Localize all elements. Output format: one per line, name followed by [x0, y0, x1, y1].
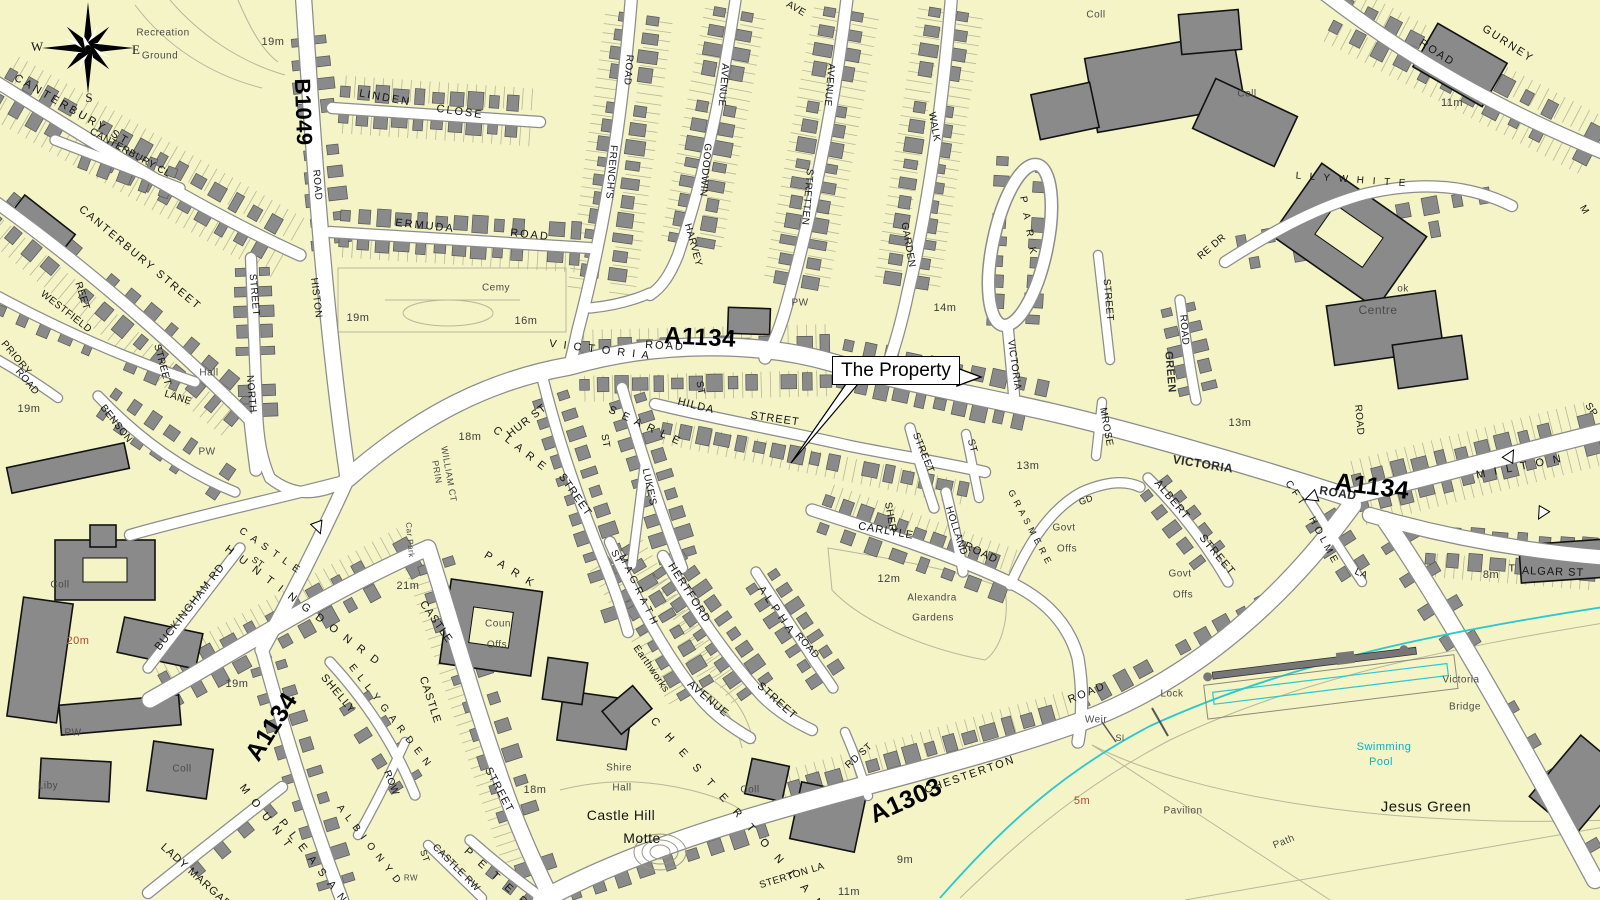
street-name-label: ST	[608, 548, 624, 565]
street-name-label: ROAD	[310, 169, 324, 201]
street-name-label: M	[1577, 203, 1591, 216]
street-name-label: ROAD	[621, 54, 635, 86]
street-name-label: WESTFIELD	[38, 289, 93, 336]
map-stage[interactable]: RecreationGround19mCANTERBURY STCANTERBU…	[0, 0, 1600, 900]
feature-label: 9m	[897, 854, 913, 866]
street-name-label: Earthworks	[631, 643, 672, 694]
feature-label: 11m	[1441, 97, 1463, 109]
feature-label: Offs	[1057, 544, 1077, 555]
feature-label: Offs	[1173, 590, 1193, 601]
map-labels: RecreationGround19mCANTERBURY STCANTERBU…	[0, 0, 1600, 900]
feature-label: 14m	[934, 302, 957, 314]
feature-label: PW	[64, 728, 81, 739]
street-name-label: STREET	[1101, 278, 1116, 321]
street-name-label: ALBERT	[1152, 478, 1192, 523]
street-name-label: ST	[693, 380, 706, 395]
feature-label: Offs	[487, 640, 507, 651]
street-name-label: CARLYLE	[857, 520, 915, 542]
street-name-label: C H E S T E R T O N L A N E	[648, 715, 842, 900]
feature-label: Pool	[1369, 756, 1393, 768]
street-name-label: ROAD	[1352, 404, 1366, 436]
street-name-label: E L L Y G A R D E N	[346, 662, 434, 770]
street-name-label: HUR ST	[505, 402, 549, 440]
street-name-label: HARVEY	[682, 222, 704, 267]
street-name-label: S E A R L E	[607, 404, 684, 448]
street-name-label: ROAD	[13, 367, 41, 398]
feature-label: Path	[1271, 833, 1296, 852]
feature-label: ok	[1397, 284, 1409, 295]
street-name-label: CANTERBURY ST	[12, 72, 132, 148]
street-name-label: NORTH	[244, 375, 258, 414]
street-name-label: STREET	[556, 471, 594, 518]
feature-label: PRIN	[430, 460, 444, 485]
feature-label: 19m	[347, 312, 370, 324]
street-name-label: BUCKINGHAM RD	[152, 561, 227, 652]
feature-label: Lock	[1160, 689, 1183, 700]
street-name-label: ROAD	[1417, 37, 1457, 69]
street-name-label: CHESTERTON	[923, 754, 1017, 796]
street-name-label: STREET	[1197, 532, 1238, 578]
street-name-label: Jesus Green	[1381, 799, 1472, 816]
feature-label: 8m	[1483, 569, 1499, 581]
street-name-label: ROAD	[793, 631, 822, 661]
feature-label: 5m	[1074, 795, 1090, 807]
feature-label: Hall	[612, 783, 631, 794]
street-name-label: C L A R E	[491, 424, 550, 474]
feature-label: Centre	[1358, 303, 1397, 317]
feature-label: 20m	[67, 635, 90, 647]
street-name-label: A L B I O N Y D	[334, 803, 403, 888]
street-name-label: AVENUE	[716, 63, 731, 107]
street-name-label: AVENUE	[685, 678, 731, 720]
street-name-label: Motte	[623, 830, 661, 846]
feature-label: Victoria	[1442, 675, 1479, 686]
street-name-label: STERTON LA	[758, 861, 826, 891]
route-number-label: A1134	[663, 322, 736, 354]
street-name-label: CLOSE	[436, 103, 485, 121]
street-name-label: MROSE	[1097, 407, 1115, 447]
feature-label: 13m	[1229, 417, 1252, 429]
feature-label: Hall	[199, 368, 218, 379]
street-name-label: LADY MARGAR	[158, 841, 234, 900]
street-name-label: P E T E R	[462, 845, 533, 900]
feature-label: Sl	[1115, 733, 1124, 743]
feature-label: Govt	[1052, 523, 1075, 534]
street-name-label: ST	[598, 433, 611, 448]
street-name-label: ROAD	[1318, 483, 1357, 503]
route-number-label: A1303	[865, 772, 946, 829]
feature-label: WILLIAM CT	[439, 445, 459, 502]
street-name-label: ROAD	[510, 227, 551, 243]
feature-label: Coll	[1237, 89, 1256, 100]
street-name-label: HILDA	[676, 396, 715, 417]
feature-label: Swimming	[1357, 741, 1412, 753]
street-name-label: GARDEN	[899, 221, 918, 268]
feature-label: PW	[791, 298, 808, 309]
feature-label: Ground	[142, 51, 178, 62]
route-number-label: B1049	[289, 78, 317, 146]
feature-label: 12m	[878, 573, 901, 585]
feature-label: Shire	[606, 763, 632, 774]
feature-label: Weir	[1085, 715, 1107, 726]
feature-label: RW	[404, 874, 418, 883]
feature-label: 19m	[262, 36, 285, 48]
street-name-label: T	[1509, 564, 1516, 575]
street-name-label: V I C T O R I A	[548, 338, 651, 362]
street-name-label: STREET	[151, 343, 173, 387]
feature-label: Coll	[50, 580, 69, 591]
feature-label: Coll	[1086, 10, 1105, 21]
street-name-label: CASTLE RW	[430, 842, 482, 894]
feature-label: Pavilion	[1163, 806, 1202, 817]
street-name-label: LA	[1353, 566, 1370, 582]
feature-label: Alexandra	[907, 593, 957, 604]
street-name-label: HOLLAND	[943, 505, 969, 557]
street-name-label: RD ST	[843, 741, 875, 771]
feature-label: PW	[198, 447, 215, 458]
street-name-label: H O L M E	[1306, 515, 1340, 565]
property-callout: The Property	[832, 356, 960, 385]
street-name-label: ROAD	[645, 339, 685, 353]
street-name-label: P A R K	[1017, 195, 1039, 258]
street-name-label: STREET	[482, 765, 516, 814]
street-name-label: STREET	[247, 273, 262, 316]
street-name-label: VICTORIA	[1172, 452, 1235, 475]
street-name-label: M I L T O N	[1475, 453, 1565, 482]
street-name-label: LUKE'S	[640, 467, 659, 506]
street-name-label: RE DR	[1196, 232, 1229, 262]
street-name-label: G R A S M E R E	[1006, 488, 1054, 566]
feature-label: Coun	[485, 619, 511, 630]
street-name-label: GURNEY	[1480, 23, 1536, 65]
street-name-label: CANTERBURY CL	[88, 126, 173, 180]
street-name-label: SP	[1582, 401, 1599, 419]
street-name-label: CASTLE	[417, 675, 443, 725]
street-name-label: GREEN	[1162, 351, 1178, 394]
feature-label: Car Park	[404, 522, 416, 558]
street-name-label: LANE	[163, 388, 193, 407]
street-name-label: STREET	[910, 431, 936, 474]
street-name-label: SHER	[882, 501, 898, 532]
feature-label: Govt	[1168, 569, 1191, 580]
feature-label: Coll	[172, 764, 191, 775]
feature-label: Gardens	[912, 613, 954, 624]
feature-label: 18m	[524, 784, 547, 796]
street-name-label: SHELLY	[318, 672, 358, 716]
property-callout-text: The Property	[841, 360, 951, 382]
street-name-label: ST	[965, 438, 979, 454]
route-number-label: A1134	[1333, 468, 1411, 506]
street-name-label: ST	[418, 848, 432, 863]
feature-label: 16m	[515, 315, 538, 327]
street-name-label: ERMUDA	[395, 217, 456, 235]
feature-label: Bridge	[1449, 702, 1481, 713]
street-name-label: AVE	[784, 0, 807, 19]
street-name-label: CANTERBURY STREET	[76, 203, 203, 312]
street-name-label: LINDEN	[358, 88, 412, 109]
street-name-label: ST	[250, 554, 266, 569]
feature-label: Recreation	[136, 28, 189, 39]
street-name-label: ROAD	[962, 540, 1000, 566]
street-name-label: C F T	[1283, 479, 1308, 508]
feature-label: 13m	[1017, 460, 1040, 472]
feature-label: 19m	[226, 678, 249, 690]
street-name-label: P A R K	[482, 549, 538, 590]
route-number-label: A1134	[240, 688, 304, 767]
street-name-label: VICTORIA	[1005, 339, 1023, 391]
street-name-label: L L Y W H I T E	[1295, 171, 1408, 190]
street-name-label: GOODWIN	[697, 143, 713, 197]
street-name-label: M A G R A T H	[616, 553, 660, 627]
street-name-label: A L P H A	[755, 584, 797, 636]
street-name-label: ROAD	[1177, 314, 1191, 346]
street-name-label: Castle Hill	[587, 807, 656, 823]
feature-label: 18m	[459, 431, 482, 443]
feature-label: Liby	[38, 781, 58, 792]
feature-label: Cemy	[482, 283, 510, 294]
street-name-label: CASTLE	[417, 599, 455, 646]
feature-label: 19m	[18, 403, 41, 415]
street-name-label: C A S T L E	[237, 526, 303, 577]
street-name-label: H U N T I N G D O N R D	[222, 543, 383, 669]
street-name-label: HERTFORD	[665, 561, 713, 625]
feature-label: 11m	[838, 886, 860, 898]
street-name-label: GD	[1077, 493, 1094, 507]
street-name-label: P L E A S A N T	[276, 817, 360, 900]
street-name-label: ROAD	[1066, 680, 1107, 706]
street-name-label: PRIORY	[0, 339, 33, 378]
street-name-label: REET	[72, 281, 91, 312]
street-name-label: AVENUE	[822, 63, 837, 107]
street-name-label: HISTON	[308, 277, 324, 319]
street-name-label: FRENCH'S	[603, 144, 619, 199]
feature-label: 21m	[397, 580, 420, 592]
street-name-label: STREET	[755, 680, 800, 722]
street-name-label: ALGAR ST	[1522, 565, 1585, 579]
street-name-label: STRETTEN	[799, 168, 815, 226]
street-name-label: ROW	[381, 769, 401, 797]
street-name-label: M O U N T	[237, 782, 295, 852]
street-name-label: WALK	[926, 111, 942, 142]
feature-label: Coll	[740, 785, 759, 796]
street-name-label: BENSON	[98, 403, 135, 445]
street-name-label: STREET	[750, 410, 801, 429]
